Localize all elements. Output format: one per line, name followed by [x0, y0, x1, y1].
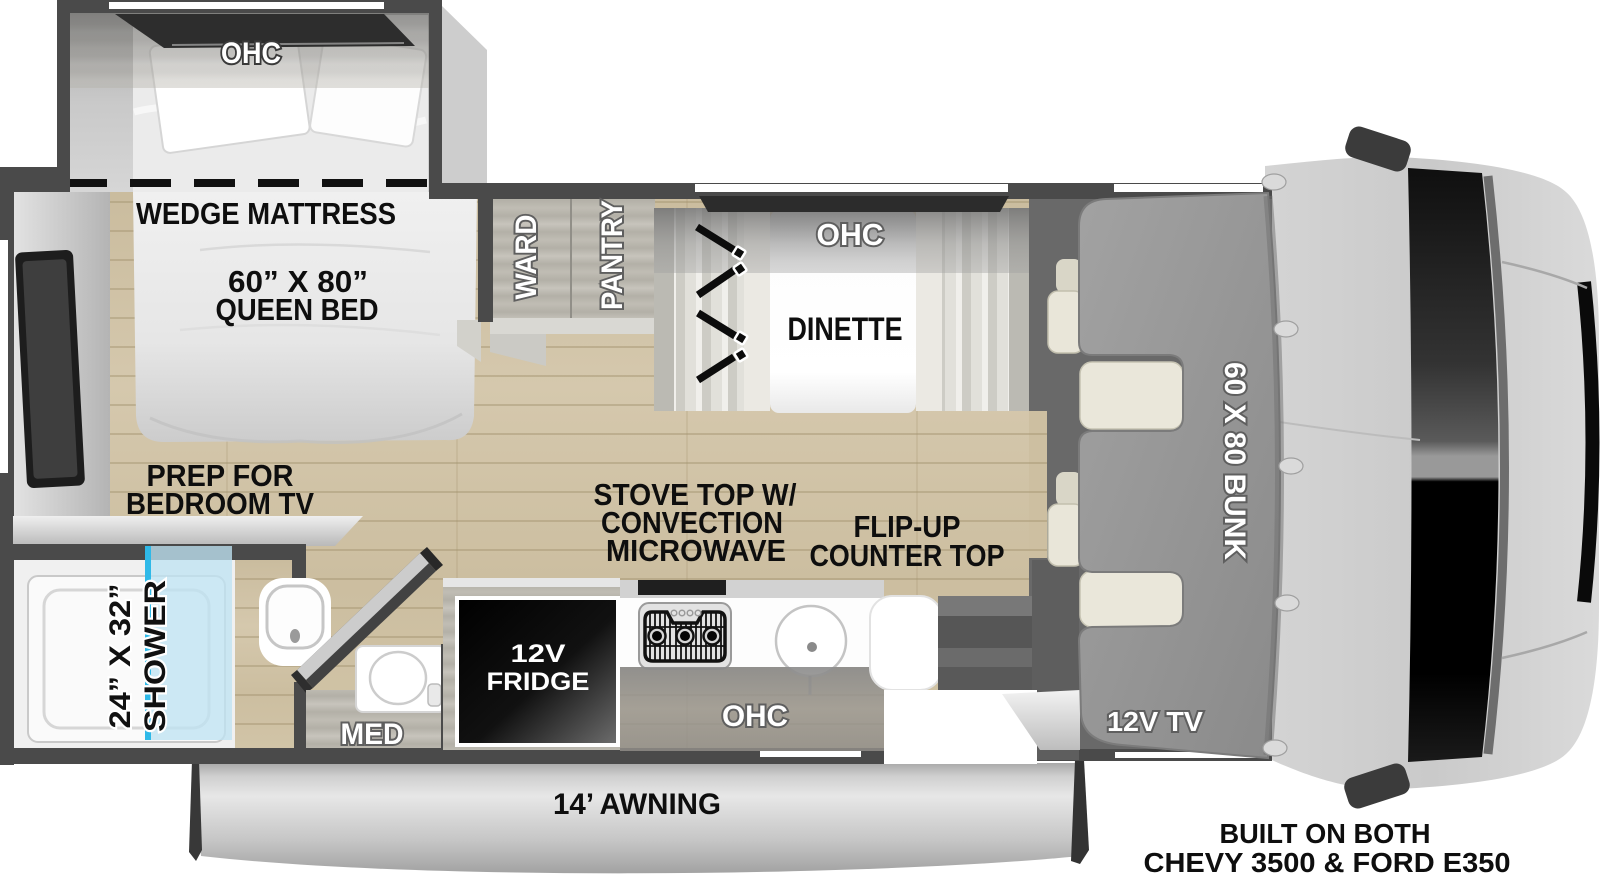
svg-text:COUNTER TOP: COUNTER TOP	[810, 538, 1005, 573]
svg-text:MED: MED	[341, 718, 404, 751]
svg-text:FRIDGE: FRIDGE	[487, 668, 590, 696]
svg-text:DINETTE: DINETTE	[788, 311, 903, 347]
svg-text:24” X 32”: 24” X 32”	[104, 584, 137, 729]
svg-text:BUILT ON BOTH: BUILT ON BOTH	[1220, 818, 1431, 849]
svg-text:PANTRY: PANTRY	[596, 200, 629, 310]
svg-text:12V: 12V	[511, 640, 566, 668]
svg-text:WARD: WARD	[510, 215, 543, 300]
svg-text:60 X 80 BUNK: 60 X 80 BUNK	[1218, 362, 1251, 560]
svg-text:14’ AWNING: 14’ AWNING	[553, 788, 721, 821]
svg-text:QUEEN BED: QUEEN BED	[216, 292, 379, 327]
svg-text:BEDROOM TV: BEDROOM TV	[126, 486, 314, 521]
svg-text:OHC: OHC	[817, 217, 884, 252]
svg-text:WEDGE MATTRESS: WEDGE MATTRESS	[136, 196, 396, 231]
svg-text:OHC: OHC	[722, 700, 788, 733]
svg-text:12V TV: 12V TV	[1107, 706, 1203, 737]
svg-text:MICROWAVE: MICROWAVE	[606, 533, 786, 568]
svg-text:OHC: OHC	[221, 37, 281, 70]
svg-text:SHOWER: SHOWER	[139, 580, 172, 732]
svg-text:CHEVY 3500 & FORD E350: CHEVY 3500 & FORD E350	[1144, 847, 1511, 878]
